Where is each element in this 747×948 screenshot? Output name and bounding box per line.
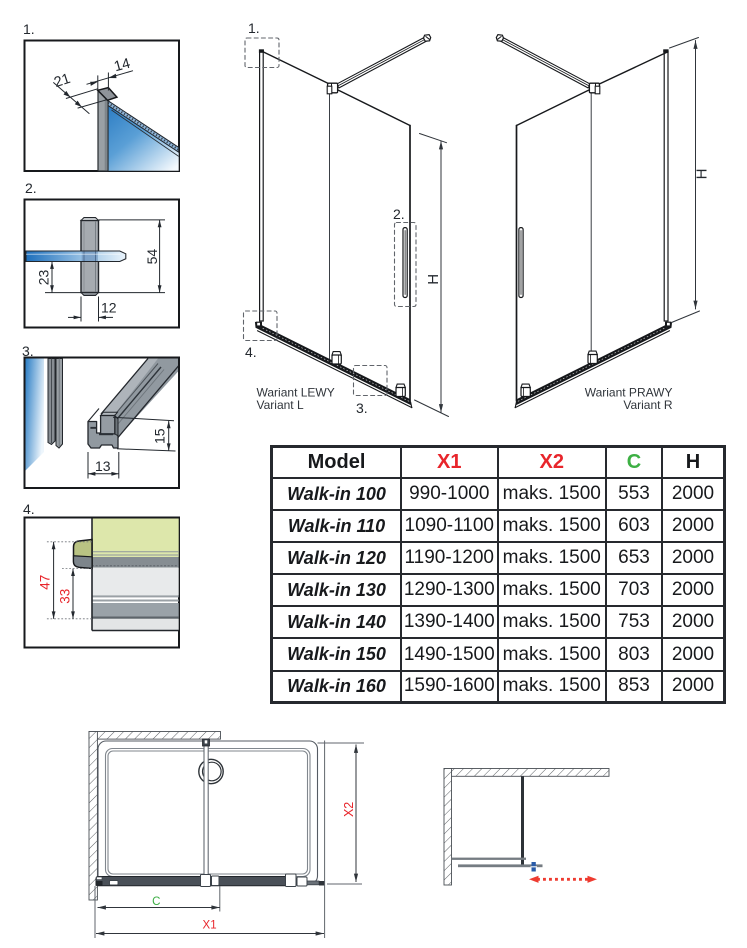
svg-text:Variant R: Variant R [623, 398, 672, 412]
svg-text:13: 13 [95, 458, 111, 474]
svg-text:H: H [425, 274, 442, 285]
svg-text:47: 47 [38, 575, 53, 590]
svg-text:C: C [152, 896, 160, 908]
svg-text:4.: 4. [245, 344, 257, 360]
svg-text:12: 12 [101, 299, 117, 315]
svg-text:1.: 1. [248, 20, 260, 36]
svg-text:3.: 3. [356, 400, 368, 416]
svg-text:2.: 2. [25, 180, 37, 196]
svg-text:23: 23 [36, 270, 52, 286]
svg-text:X2: X2 [342, 802, 356, 817]
svg-text:54: 54 [144, 249, 160, 265]
svg-text:1.: 1. [23, 21, 35, 37]
svg-text:X1: X1 [203, 919, 217, 931]
svg-text:Variant L: Variant L [257, 398, 304, 412]
svg-text:2.: 2. [393, 206, 405, 222]
svg-text:H: H [694, 169, 711, 180]
svg-text:4.: 4. [23, 501, 35, 517]
svg-text:33: 33 [57, 589, 72, 604]
svg-text:15: 15 [151, 428, 167, 444]
